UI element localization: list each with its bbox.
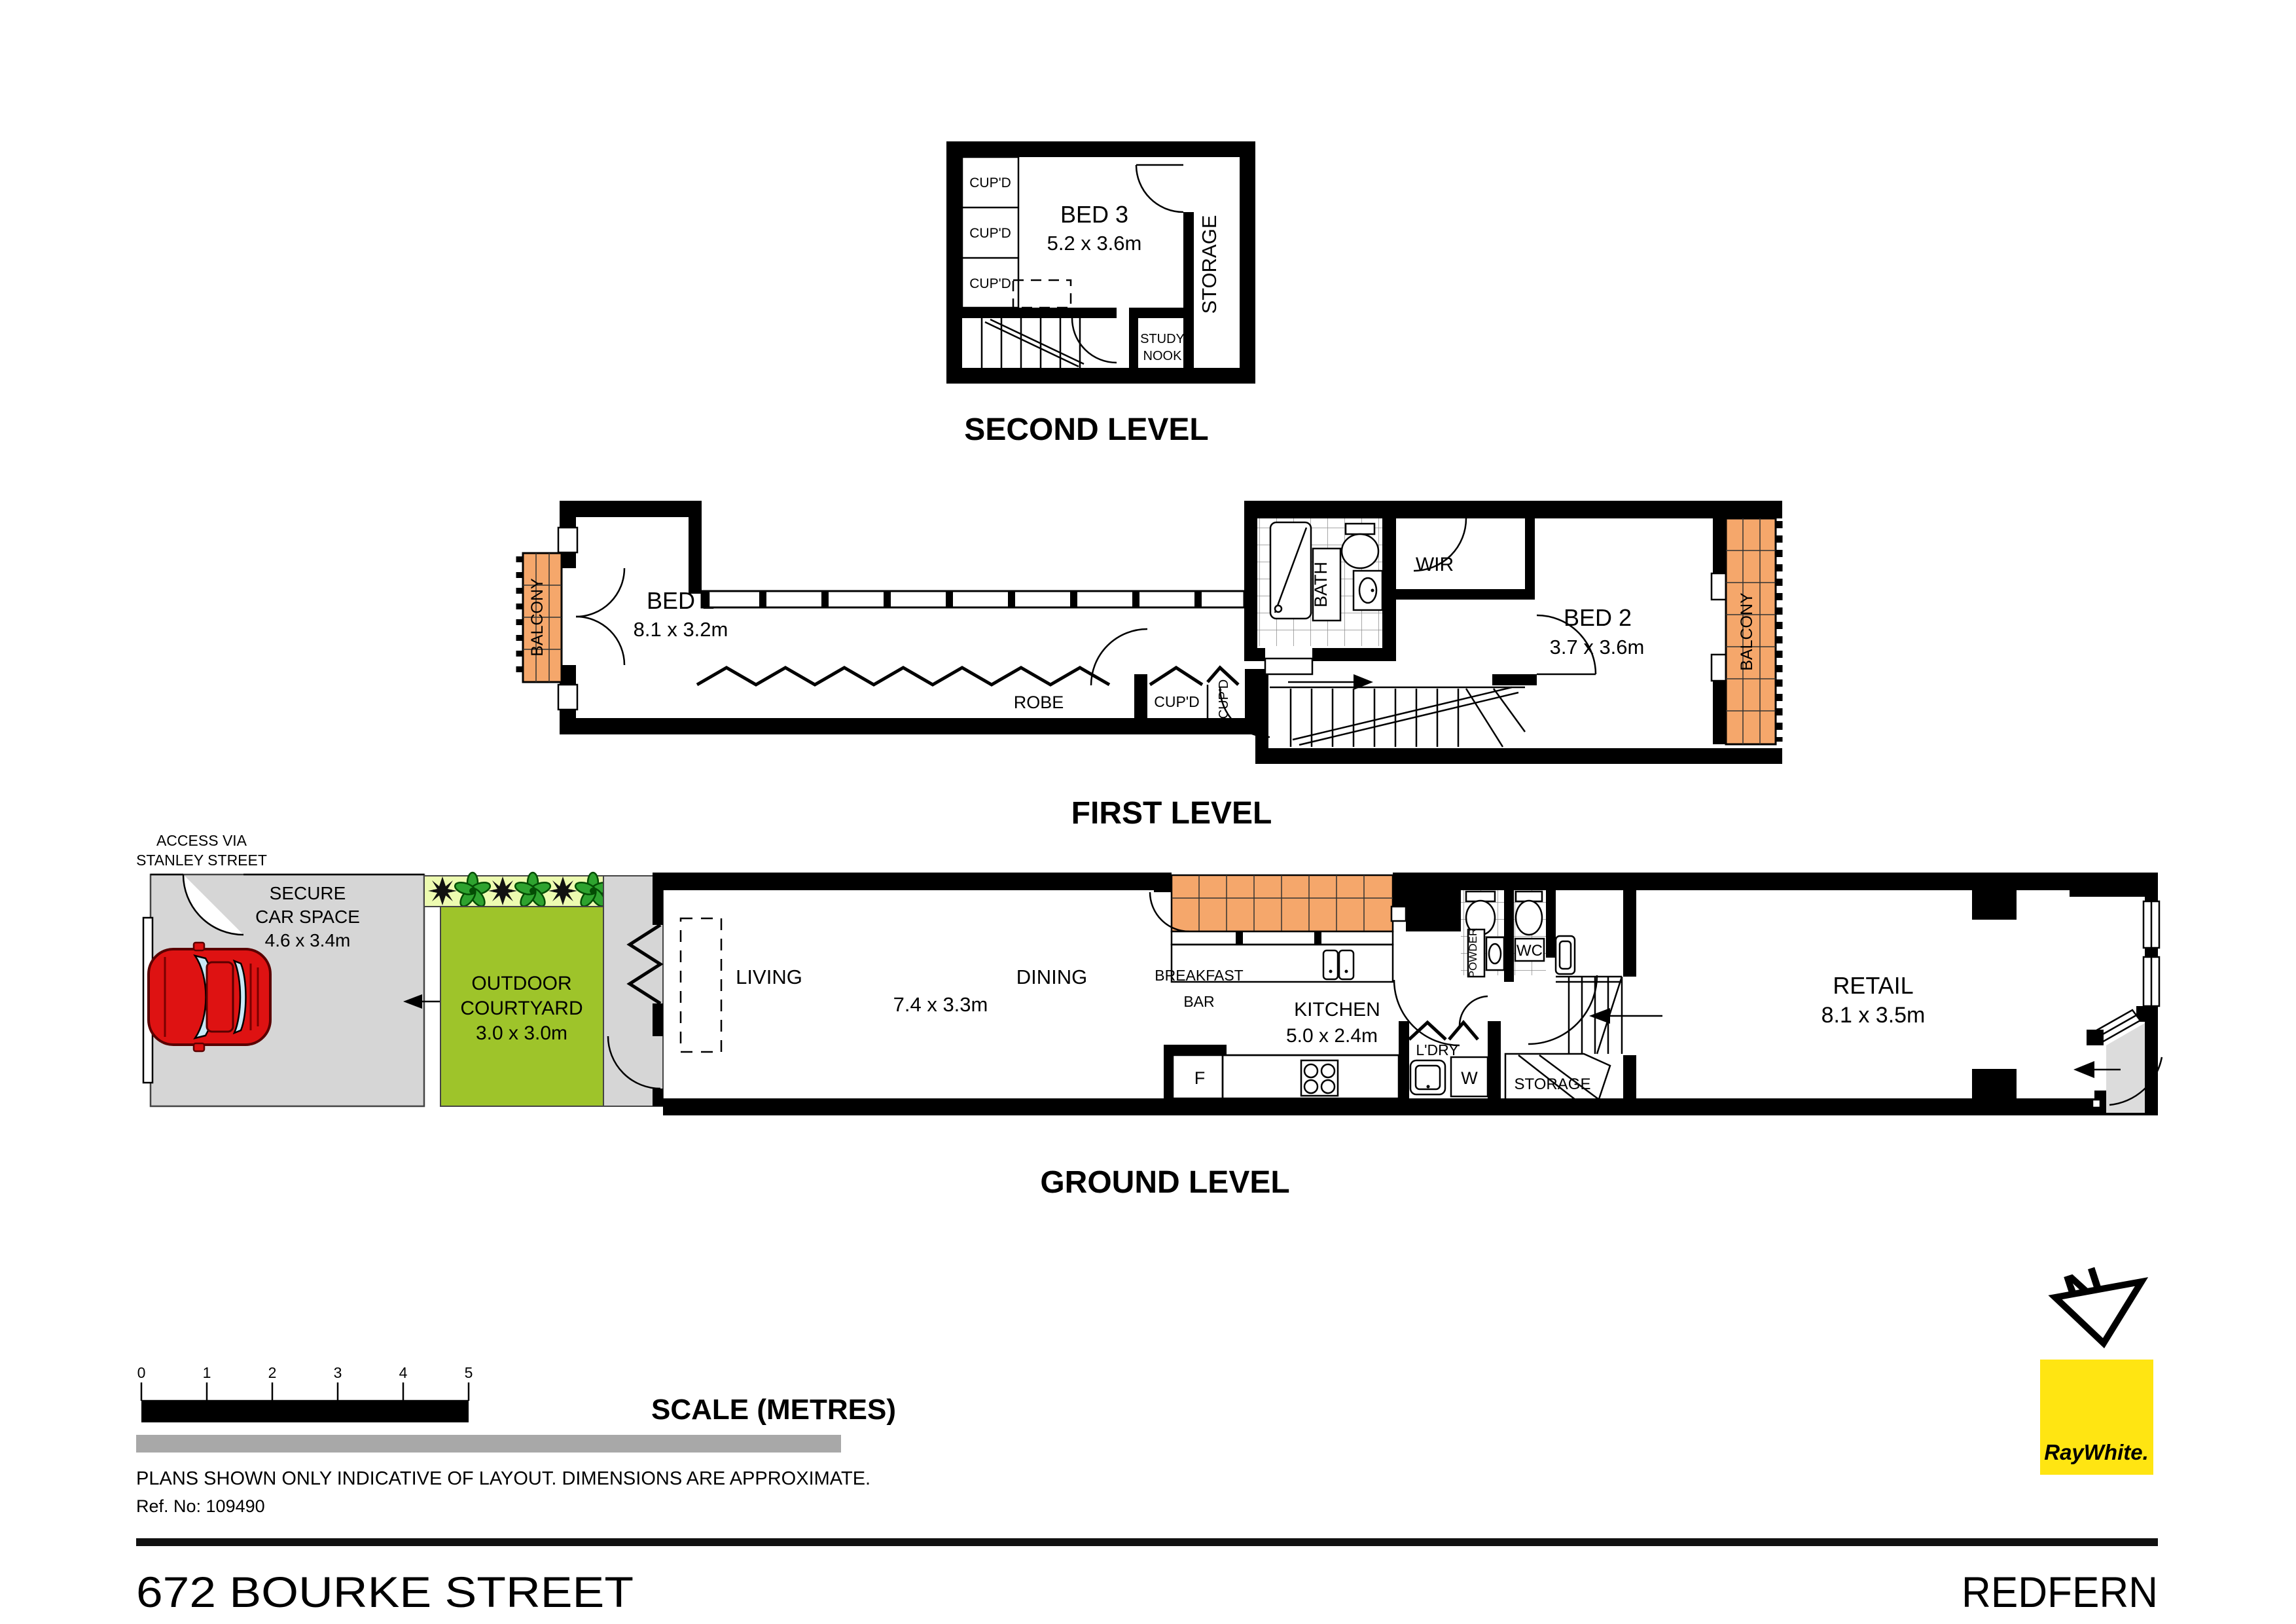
stairs-entry-arrow bbox=[1589, 1008, 1662, 1024]
car-space-line1: SECURE bbox=[270, 883, 346, 903]
first-level-walls bbox=[558, 501, 1782, 764]
void-dashed-outline bbox=[1013, 280, 1071, 308]
bed1-balcony-door-arc-top bbox=[576, 568, 624, 617]
first-level-title: FIRST LEVEL bbox=[1071, 796, 1272, 831]
scale-label: SCALE (METRES) bbox=[651, 1394, 896, 1426]
suburb: REDFERN bbox=[1962, 1568, 2158, 1616]
wc-label: WC bbox=[1516, 942, 1543, 960]
courtyard-line2: COURTYARD bbox=[460, 998, 583, 1019]
breakfast-line1: BREAKFAST bbox=[1155, 967, 1243, 984]
living-dashed-outline bbox=[681, 918, 721, 1052]
bath-door-step bbox=[1265, 659, 1312, 674]
retail-pier-bottom bbox=[1972, 1069, 2017, 1098]
retail-label: RETAIL bbox=[1833, 972, 1913, 999]
disclaimer: PLANS SHOWN ONLY INDICATIVE OF LAYOUT. D… bbox=[136, 1468, 870, 1489]
storage-label: STORAGE bbox=[1198, 215, 1221, 314]
toilet-cistern bbox=[1346, 524, 1374, 534]
ground-stairs bbox=[1556, 977, 1662, 1054]
laundry-label: L'DRY bbox=[1416, 1041, 1458, 1058]
wc-room: WC bbox=[1514, 890, 1546, 975]
car-space-line2: CAR SPACE bbox=[255, 907, 360, 927]
scale-tick-1: 1 bbox=[203, 1364, 211, 1381]
planter-strip bbox=[424, 873, 612, 909]
powder-room: POWDER bbox=[1461, 890, 1504, 978]
courtyard-dims: 3.0 x 3.0m bbox=[476, 1022, 567, 1044]
kitchen-bench-lower: F bbox=[1164, 1045, 1399, 1100]
footer-rule bbox=[136, 1538, 2158, 1546]
dining-label: DINING bbox=[1016, 965, 1088, 988]
powder-window bbox=[1391, 907, 1406, 921]
robe-zigzag bbox=[697, 668, 1109, 685]
first-cupboard2-label: CUP'D bbox=[1217, 679, 1231, 719]
scale-tick-2: 2 bbox=[268, 1364, 277, 1381]
washer-label: W bbox=[1461, 1068, 1478, 1088]
wc-toilet bbox=[1516, 901, 1542, 935]
scale-tick-0: 0 bbox=[137, 1364, 146, 1381]
bed3-label: BED 3 bbox=[1060, 201, 1128, 228]
balcony-right: BALCONY bbox=[1726, 518, 1779, 744]
scale-tick-3: 3 bbox=[334, 1364, 342, 1381]
kitchen-sink bbox=[1323, 950, 1338, 979]
kitchen-window-band bbox=[1172, 931, 1393, 945]
access-line1: ACCESS VIA bbox=[156, 832, 247, 849]
courtyard-line1: OUTDOOR bbox=[471, 973, 571, 994]
retail-pier-top bbox=[1972, 890, 2017, 920]
bed2-label: BED 2 bbox=[1564, 604, 1632, 631]
floorplan-drawing: CUP'D CUP'D CUP'D BED 3 5.2 x 3.6m STUDY… bbox=[0, 0, 2296, 1624]
scale-bar: 0 1 2 3 4 5 SCALE (METRES) bbox=[137, 1364, 896, 1426]
wir-room: WIR bbox=[1396, 517, 1535, 600]
car-icon bbox=[149, 943, 270, 1051]
wir-label: WIR bbox=[1416, 554, 1454, 575]
ground-level-title: GROUND LEVEL bbox=[1040, 1165, 1289, 1200]
balcony-left: BALCONY bbox=[519, 553, 562, 682]
living-label: LIVING bbox=[736, 965, 802, 988]
ref-number: Ref. No: 109490 bbox=[136, 1496, 265, 1516]
bed2-dims: 3.7 x 3.6m bbox=[1550, 636, 1645, 659]
scale-tick-5: 5 bbox=[465, 1364, 473, 1381]
scale-tick-4: 4 bbox=[399, 1364, 408, 1381]
stair-hall-door-arc bbox=[1072, 318, 1117, 363]
retail-dims: 8.1 x 3.5m bbox=[1821, 1003, 1926, 1028]
fridge-label: F bbox=[1194, 1068, 1206, 1088]
balcony-left-label: BALCONY bbox=[528, 578, 547, 657]
bed1-label: BED 1 bbox=[647, 587, 715, 614]
cupboard-label-1: CUP'D bbox=[969, 175, 1011, 190]
bath-room: BATH bbox=[1244, 517, 1396, 674]
first-level-plan: BALCONY BED 1 8.1 x 3.2m ROBE CUP'D CUP'… bbox=[519, 501, 1782, 831]
ground-storage-label: STORAGE bbox=[1515, 1075, 1591, 1093]
breakfast-line2: BAR bbox=[1183, 993, 1214, 1010]
address: 672 BOURKE STREET bbox=[136, 1568, 634, 1616]
secure-car-space: SECURE CAR SPACE 4.6 x 3.4m bbox=[143, 875, 424, 1106]
powder-label: POWDER bbox=[1467, 928, 1479, 979]
car-space-dims: 4.6 x 3.4m bbox=[265, 930, 351, 950]
ray-white-wordmark: RayWhite. bbox=[2044, 1440, 2149, 1464]
ground-level-plan: ACCESS VIA STANLEY STREET SECURE CAR SPA… bbox=[136, 832, 2162, 1200]
toilet bbox=[1342, 534, 1378, 568]
retail-shopfront bbox=[2073, 873, 2162, 1115]
terrace-tiled bbox=[1150, 875, 1393, 931]
second-level-title: SECOND LEVEL bbox=[964, 412, 1208, 447]
study-nook-line2: NOOK bbox=[1143, 349, 1183, 363]
cupboard-label-2: CUP'D bbox=[969, 226, 1011, 241]
robe-label: ROBE bbox=[1014, 693, 1064, 712]
access-line2: STANLEY STREET bbox=[136, 852, 267, 869]
bed1-dims: 8.1 x 3.2m bbox=[634, 618, 728, 641]
bed3-dims: 5.2 x 3.6m bbox=[1047, 232, 1142, 255]
gray-divider bbox=[136, 1435, 841, 1453]
hall-door-arc-2 bbox=[1528, 975, 1597, 1044]
kitchen-dims: 5.0 x 2.4m bbox=[1286, 1025, 1378, 1047]
kitchen-label: KITCHEN bbox=[1294, 999, 1380, 1020]
bed1-balcony-door-arc-bottom bbox=[576, 617, 624, 665]
study-nook-line1: STUDY bbox=[1140, 332, 1185, 346]
second-level-stairs bbox=[982, 318, 1084, 368]
floorplan-page: CUP'D CUP'D CUP'D BED 3 5.2 x 3.6m STUDY… bbox=[0, 0, 2296, 1624]
window-band bbox=[702, 591, 1244, 607]
cupboard-column: CUP'D CUP'D CUP'D bbox=[962, 157, 1018, 308]
balcony-right-label: BALCONY bbox=[1738, 592, 1756, 671]
compass: N bbox=[2055, 1255, 2142, 1343]
outdoor-courtyard: OUTDOOR COURTYARD 3.0 x 3.0m bbox=[440, 907, 603, 1106]
first-cupboard1-label: CUP'D bbox=[1154, 693, 1200, 710]
cupboard-label-3: CUP'D bbox=[969, 276, 1011, 291]
bath-label: BATH bbox=[1311, 562, 1331, 607]
living-dining-dims: 7.4 x 3.3m bbox=[893, 993, 988, 1016]
storage-door-arc bbox=[1136, 165, 1183, 212]
second-level-plan: CUP'D CUP'D CUP'D BED 3 5.2 x 3.6m STUDY… bbox=[946, 141, 1255, 447]
ray-white-logo: RayWhite. bbox=[2040, 1360, 2153, 1475]
laundry: L'DRY W bbox=[1399, 996, 1501, 1100]
